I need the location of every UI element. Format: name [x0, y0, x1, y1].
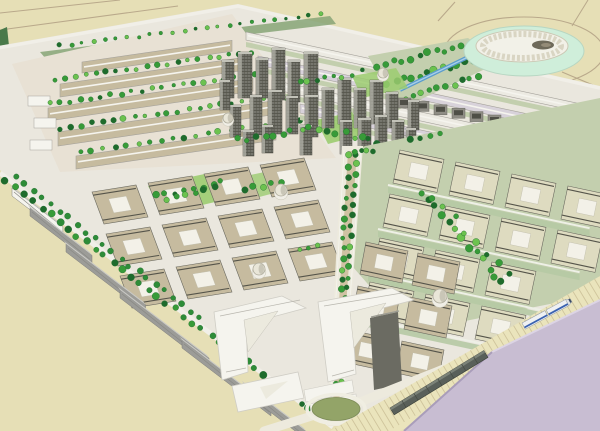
- stadium: [464, 26, 584, 76]
- masterplan-rendering: [0, 0, 600, 431]
- masterplan-canvas: [0, 0, 600, 431]
